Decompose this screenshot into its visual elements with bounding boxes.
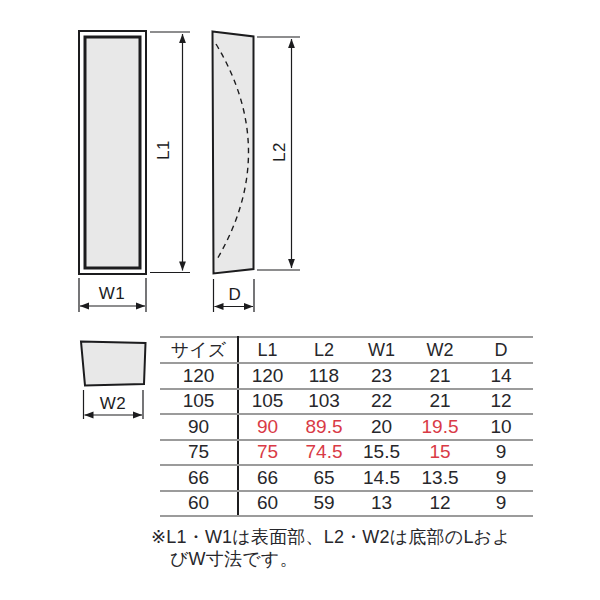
col-header-w2: W2 — [411, 337, 469, 363]
cell-l1: 105 — [238, 389, 296, 415]
cell-l2: 65 — [296, 465, 352, 491]
cell-w2: 15 — [411, 440, 469, 466]
cell-d: 9 — [469, 491, 533, 517]
cell-size: 105 — [160, 389, 238, 415]
table-row: 105 105 103 22 21 12 — [160, 389, 533, 415]
cell-w1: 23 — [352, 363, 411, 389]
cell-d: 10 — [469, 414, 533, 440]
cell-size: 120 — [160, 363, 238, 389]
l2-label: L2 — [270, 142, 290, 162]
cell-d: 14 — [469, 363, 533, 389]
footnote: ※L1・W1は表面部、L2・W2は底部のLおよ びW寸法です。 — [151, 526, 561, 570]
cell-l2: 74.5 — [296, 440, 352, 466]
cell-l1: 120 — [238, 363, 296, 389]
cell-l1: 66 — [238, 465, 296, 491]
bottom-view-outline — [81, 342, 146, 386]
table-row: 66 66 65 14.5 13.5 9 — [160, 465, 533, 491]
front-view-inner-panel — [85, 37, 140, 268]
cell-w1: 20 — [352, 414, 411, 440]
footnote-line-2: びW寸法です。 — [151, 548, 561, 570]
cell-d: 9 — [469, 440, 533, 466]
cell-w2: 12 — [411, 491, 469, 517]
table-row: 120 120 118 23 21 14 — [160, 363, 533, 389]
table-row: 60 60 59 13 12 9 — [160, 491, 533, 517]
cell-w1: 15.5 — [352, 440, 411, 466]
cell-w2: 21 — [411, 363, 469, 389]
cell-l2: 59 — [296, 491, 352, 517]
col-header-size: サイズ — [160, 337, 238, 363]
d-label: D — [229, 285, 242, 305]
col-header-l2: L2 — [296, 337, 352, 363]
cell-l1: 75 — [238, 440, 296, 466]
w1-label: W1 — [99, 284, 126, 304]
l1-label: L1 — [154, 140, 174, 160]
cell-w1: 22 — [352, 389, 411, 415]
cell-size: 90 — [160, 414, 238, 440]
cell-w1: 13 — [352, 491, 411, 517]
cell-size: 75 — [160, 440, 238, 466]
cell-l1: 90 — [238, 414, 296, 440]
table-row: 90 90 89.5 20 19.5 10 — [160, 414, 533, 440]
cell-w2: 19.5 — [411, 414, 469, 440]
cell-l2: 89.5 — [296, 414, 352, 440]
col-header-d: D — [469, 337, 533, 363]
size-table: サイズ L1 L2 W1 W2 D 120 120 118 23 21 14 1… — [160, 336, 533, 517]
side-view-outline — [213, 32, 254, 274]
table-row: 75 75 74.5 15.5 15 9 — [160, 440, 533, 466]
cell-d: 9 — [469, 465, 533, 491]
page-background: L1 L2 W1 D W2 サイズ L1 L2 W1 W2 D 120 120 … — [0, 0, 600, 600]
col-header-w1: W1 — [352, 337, 411, 363]
cell-w2: 13.5 — [411, 465, 469, 491]
cell-w1: 14.5 — [352, 465, 411, 491]
cell-l2: 103 — [296, 389, 352, 415]
w2-label: W2 — [100, 394, 127, 414]
cell-d: 12 — [469, 389, 533, 415]
col-header-l1: L1 — [238, 337, 296, 363]
table-header-row: サイズ L1 L2 W1 W2 D — [160, 337, 533, 363]
cell-w2: 21 — [411, 389, 469, 415]
footnote-line-1: ※L1・W1は表面部、L2・W2は底部のLおよ — [151, 526, 561, 548]
cell-size: 66 — [160, 465, 238, 491]
cell-l1: 60 — [238, 491, 296, 517]
cell-size: 60 — [160, 491, 238, 517]
cell-l2: 118 — [296, 363, 352, 389]
